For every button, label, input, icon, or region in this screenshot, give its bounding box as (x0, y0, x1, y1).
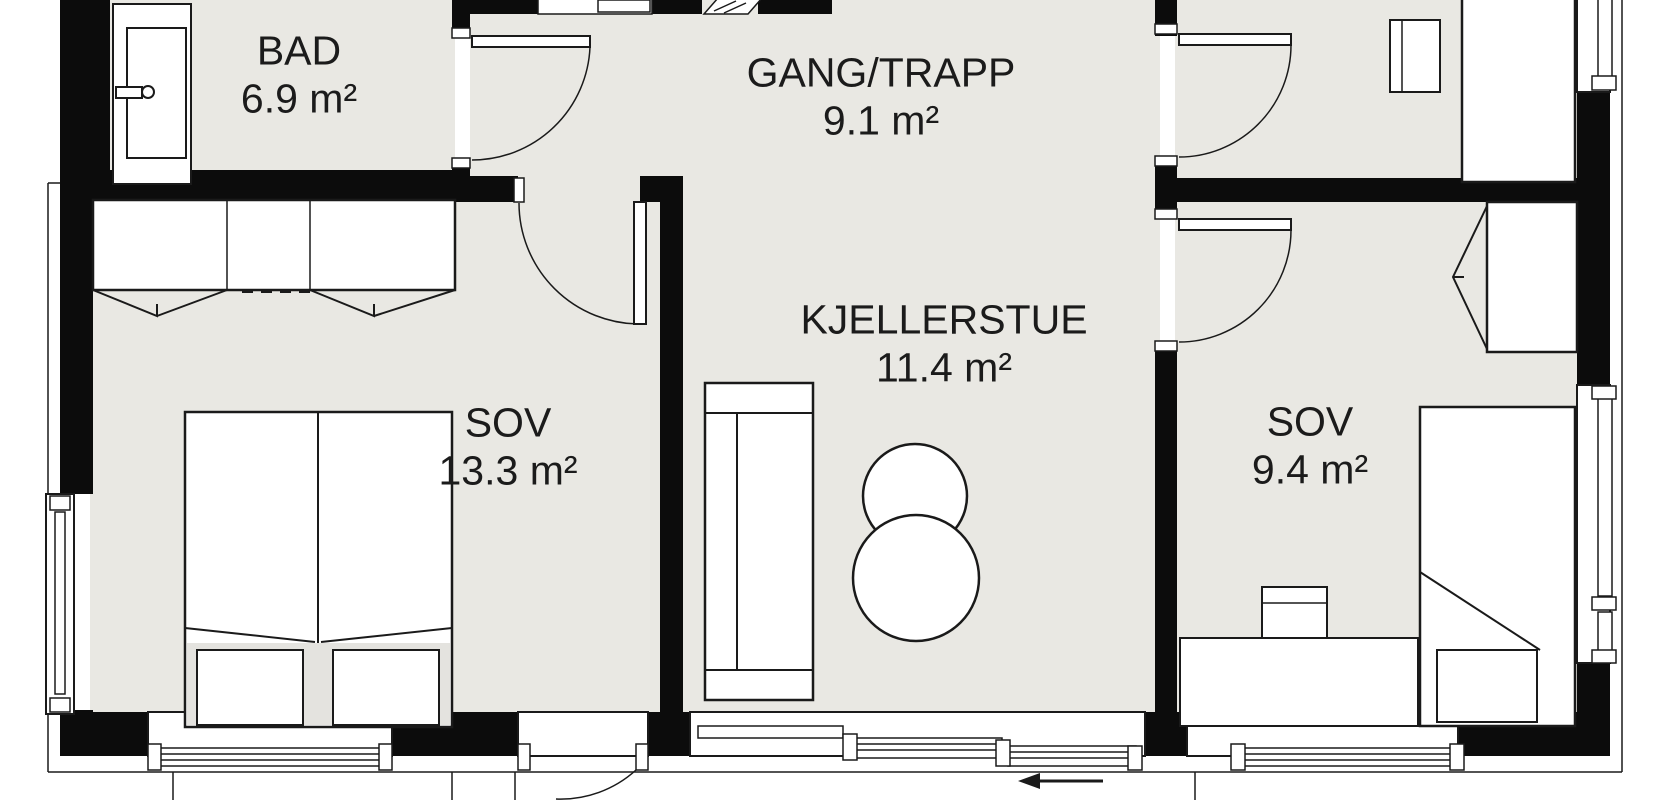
sofa (705, 383, 813, 700)
room-area: 6.9 m² (241, 75, 357, 123)
dresser-sov-9 (1180, 638, 1418, 726)
stair-opening (538, 0, 762, 14)
room-label-gang: GANG/TRAPP 9.1 m² (747, 49, 1016, 146)
vanity-sink (113, 4, 191, 184)
desk-upper-right (1462, 0, 1575, 182)
room-name: KJELLERSTUE (800, 296, 1087, 344)
room-name: GANG/TRAPP (747, 49, 1016, 97)
room-area: 9.4 m² (1252, 446, 1368, 494)
round-side-tables (853, 444, 979, 641)
sliding-door-kjellerstue (690, 712, 1145, 789)
room-area: 9.1 m² (747, 97, 1016, 145)
slide-direction-arrow (1018, 773, 1103, 789)
chair-upper-right (1390, 20, 1440, 92)
chair-sov-9 (1262, 587, 1327, 638)
window-right-wall-top (1577, 0, 1616, 92)
room-name: SOV (439, 399, 578, 447)
single-bed (1420, 407, 1575, 726)
room-label-sov-9: SOV 9.4 m² (1252, 398, 1368, 495)
room-area: 11.4 m² (800, 344, 1087, 392)
exterior-door-sov-13 (518, 712, 648, 799)
room-label-bad: BAD 6.9 m² (241, 27, 357, 124)
room-label-sov-13: SOV 13.3 m² (439, 399, 578, 496)
floor-plan: BAD 6.9 m² GANG/TRAPP 9.1 m² KJELLERSTUE… (0, 0, 1670, 800)
room-name: SOV (1252, 398, 1368, 446)
window-left-wall (46, 494, 74, 714)
room-label-kjellerstue: KJELLERSTUE 11.4 m² (800, 296, 1087, 393)
room-name: BAD (241, 27, 357, 75)
window-right-wall-middle (1577, 385, 1616, 663)
room-area: 13.3 m² (439, 447, 578, 495)
double-bed (185, 412, 452, 727)
